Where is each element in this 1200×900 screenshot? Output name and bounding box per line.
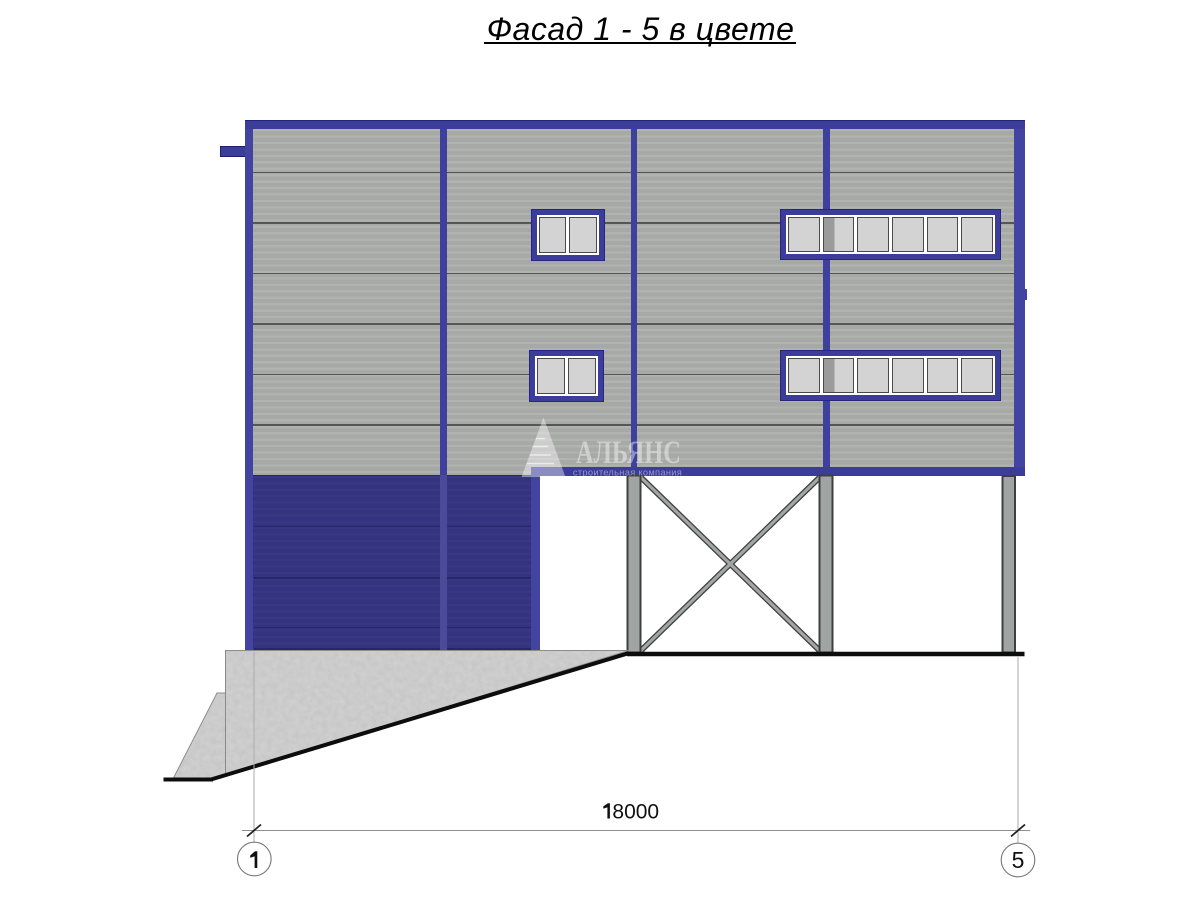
svg-text:5: 5 bbox=[1012, 847, 1025, 873]
svg-text:АЛЬЯНС: АЛЬЯНС bbox=[576, 435, 681, 471]
svg-text:строительная компания: строительная компания bbox=[573, 468, 682, 478]
svg-text:8000: 8000 bbox=[612, 801, 659, 824]
